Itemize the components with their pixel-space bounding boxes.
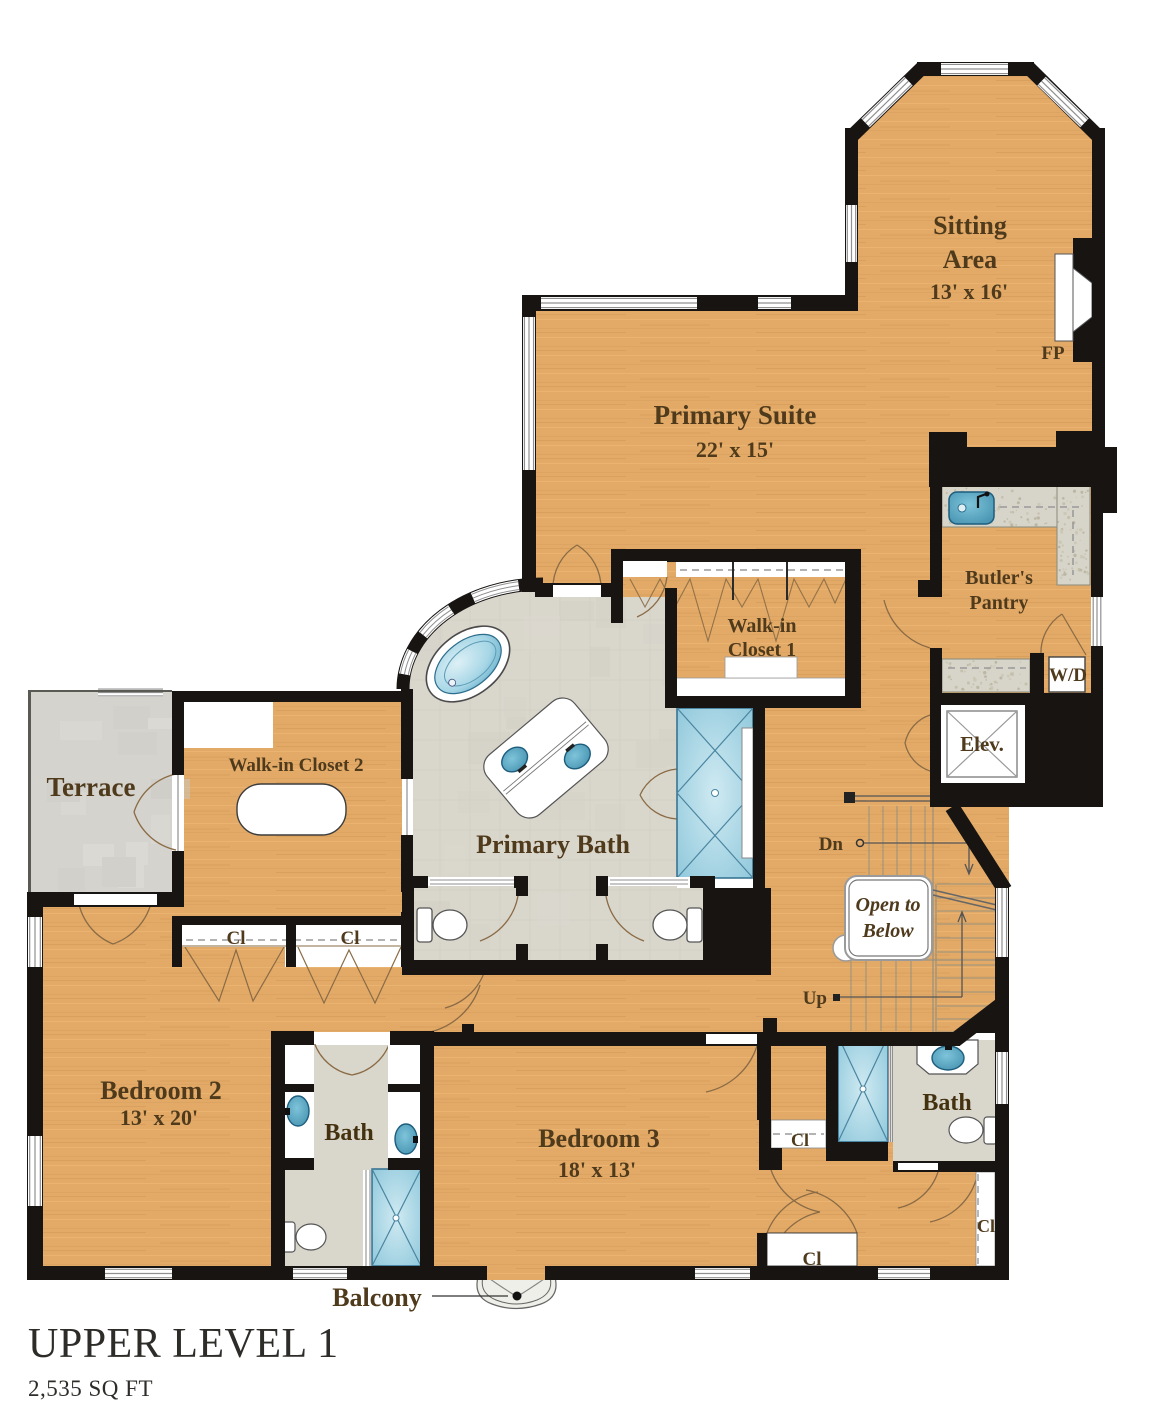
svg-text:Cl: Cl [791, 1130, 809, 1150]
svg-text:Primary Suite: Primary Suite [654, 400, 817, 430]
svg-text:18' x 13': 18' x 13' [558, 1157, 636, 1182]
svg-text:Pantry: Pantry [970, 592, 1029, 614]
svg-text:Butler's: Butler's [965, 567, 1033, 589]
svg-text:Elev.: Elev. [960, 732, 1004, 756]
svg-text:Walk-in Closet 2: Walk-in Closet 2 [228, 755, 363, 776]
svg-text:Walk-in: Walk-in [728, 615, 797, 637]
svg-text:Cl: Cl [803, 1249, 822, 1270]
svg-text:Below: Below [861, 920, 914, 942]
svg-text:Bedroom 3: Bedroom 3 [538, 1124, 660, 1153]
svg-text:Terrace: Terrace [47, 772, 136, 802]
svg-text:2,535 SQ FT: 2,535 SQ FT [28, 1376, 153, 1401]
svg-text:FP: FP [1041, 343, 1065, 364]
svg-text:Dn: Dn [819, 834, 844, 855]
svg-text:13' x 16': 13' x 16' [930, 279, 1008, 304]
svg-text:UPPER LEVEL 1: UPPER LEVEL 1 [28, 1321, 339, 1367]
svg-text:Bedroom 2: Bedroom 2 [100, 1076, 222, 1105]
svg-text:Bath: Bath [324, 1120, 373, 1146]
svg-text:Area: Area [943, 245, 997, 274]
svg-text:13' x 20': 13' x 20' [120, 1105, 198, 1130]
svg-text:Up: Up [803, 988, 827, 1009]
svg-text:Bath: Bath [922, 1090, 971, 1116]
svg-text:Sitting: Sitting [933, 211, 1007, 240]
svg-text:Cl: Cl [977, 1216, 995, 1236]
svg-text:Open to: Open to [856, 894, 921, 916]
svg-text:Balcony: Balcony [332, 1283, 422, 1312]
svg-text:Closet 1: Closet 1 [728, 639, 796, 661]
svg-text:Primary Bath: Primary Bath [476, 830, 630, 859]
svg-text:Cl: Cl [227, 928, 246, 949]
svg-text:22' x 15': 22' x 15' [696, 437, 774, 462]
svg-text:W/D: W/D [1049, 665, 1087, 686]
svg-text:Cl: Cl [341, 928, 360, 949]
